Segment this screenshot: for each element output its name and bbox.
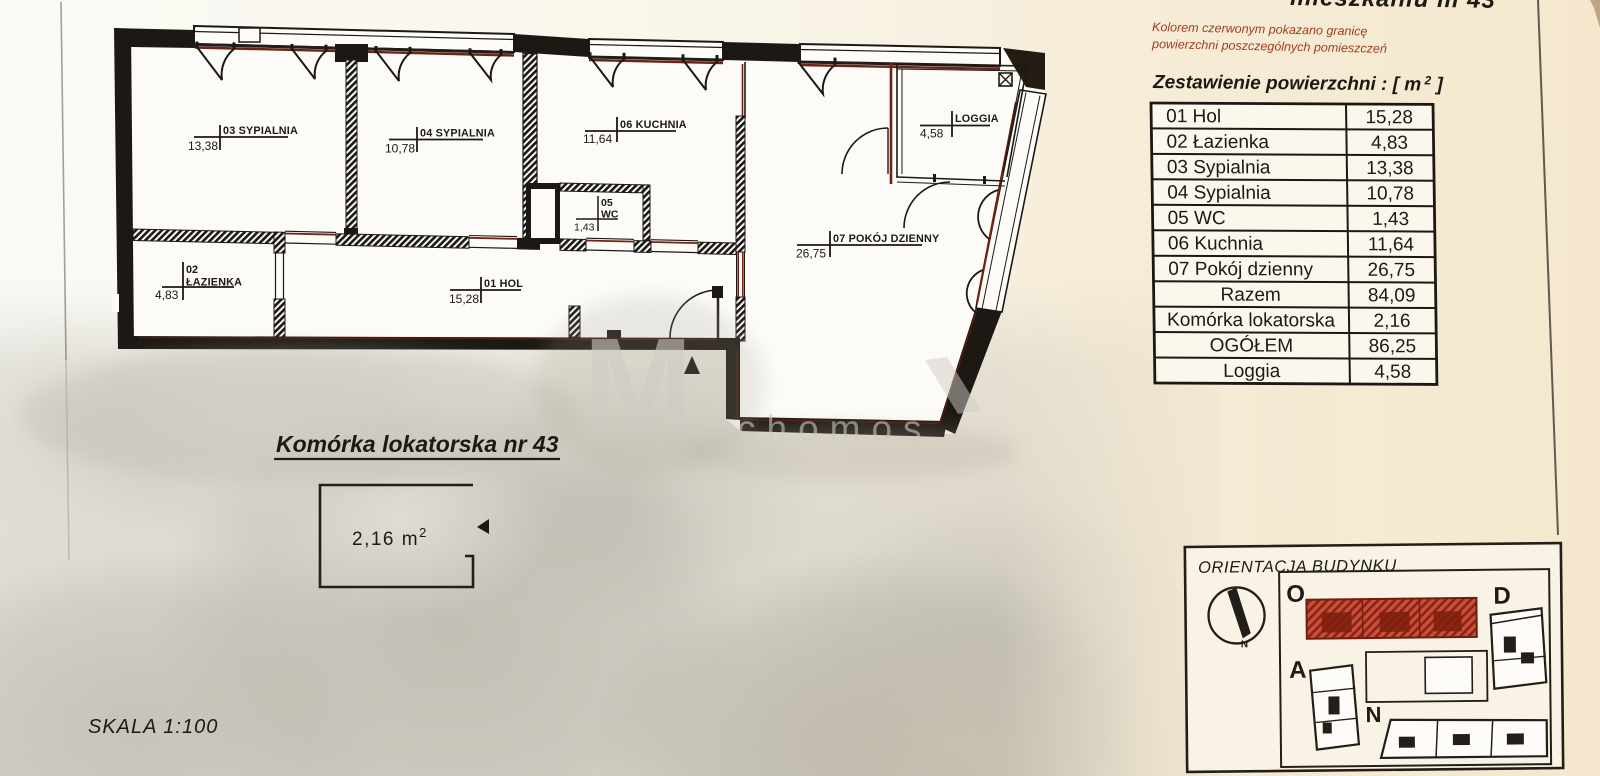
svg-text:1,43: 1,43 (1372, 209, 1409, 230)
svg-text:N: N (1241, 639, 1248, 650)
svg-text:05 WC: 05 WC (1167, 208, 1225, 229)
svg-text:O: O (1286, 581, 1305, 608)
svg-text:07 POKÓJ DZIENNY: 07 POKÓJ DZIENNY (833, 232, 940, 245)
svg-text:4,83: 4,83 (155, 288, 179, 302)
svg-text:Zestawienie powierzchni : [ m: Zestawienie powierzchni : [ m 2 ] (1152, 71, 1444, 96)
svg-text:26,75: 26,75 (796, 247, 826, 261)
svg-text:N: N (1365, 702, 1381, 727)
svg-text:13,38: 13,38 (1366, 158, 1414, 179)
svg-text:01 HOL: 01 HOL (484, 278, 523, 290)
svg-text:D: D (1493, 583, 1511, 610)
svg-text:A: A (1289, 657, 1307, 684)
svg-text:10,78: 10,78 (385, 142, 415, 156)
svg-text:07 Pokój dzienny: 07 Pokój dzienny (1168, 259, 1313, 281)
svg-text:SKALA 1:100: SKALA 1:100 (88, 716, 218, 738)
svg-text:03 SYPIALNIA: 03 SYPIALNIA (223, 125, 298, 137)
svg-text:11,64: 11,64 (1368, 234, 1415, 255)
svg-text:OGÓŁEM: OGÓŁEM (1210, 334, 1294, 356)
svg-text:WC: WC (601, 209, 619, 221)
svg-text:Loggia: Loggia (1223, 361, 1281, 382)
svg-text:4,58: 4,58 (1374, 362, 1411, 383)
svg-text:86,25: 86,25 (1368, 336, 1416, 357)
svg-text:06 Kuchnia: 06 Kuchnia (1168, 233, 1264, 254)
svg-text:15,28: 15,28 (449, 292, 479, 306)
svg-text:2,16 m2: 2,16 m2 (352, 525, 428, 550)
svg-text:Razem: Razem (1220, 285, 1280, 306)
svg-text:1,43: 1,43 (574, 222, 595, 234)
svg-text:chomos: chomos (737, 408, 933, 449)
svg-text:02 Łazienka: 02 Łazienka (1166, 132, 1269, 154)
svg-text:4,83: 4,83 (1371, 133, 1408, 154)
svg-text:04 SYPIALNIA: 04 SYPIALNIA (420, 128, 495, 140)
svg-text:02: 02 (186, 264, 198, 276)
svg-text:13,38: 13,38 (188, 139, 218, 153)
svg-text:LOGGIA: LOGGIA (955, 113, 999, 125)
svg-text:15,28: 15,28 (1365, 107, 1413, 128)
svg-text:06 KUCHNIA: 06 KUCHNIA (620, 119, 687, 131)
svg-text:10,78: 10,78 (1366, 183, 1414, 204)
svg-text:01 Hol: 01 Hol (1166, 106, 1221, 127)
svg-text:Komórka lokatorska: Komórka lokatorska (1167, 310, 1336, 332)
svg-text:04 Sypialnia: 04 Sypialnia (1167, 182, 1271, 204)
svg-text:ŁAZIENKA: ŁAZIENKA (186, 277, 242, 289)
svg-text:03 Sypialnia: 03 Sypialnia (1167, 157, 1271, 179)
svg-text:Komórka lokatorska nr 43: Komórka lokatorska nr 43 (276, 431, 559, 457)
svg-text:11,64: 11,64 (583, 132, 612, 146)
svg-text:M: M (583, 311, 693, 458)
svg-text:05: 05 (601, 197, 613, 209)
svg-text:84,09: 84,09 (1368, 285, 1416, 306)
svg-text:26,75: 26,75 (1367, 260, 1415, 281)
svg-text:2,16: 2,16 (1373, 311, 1410, 332)
svg-text:4,58: 4,58 (920, 127, 944, 141)
svg-text:ORIENTACJA BUDYNKU: ORIENTACJA BUDYNKU (1198, 557, 1397, 577)
